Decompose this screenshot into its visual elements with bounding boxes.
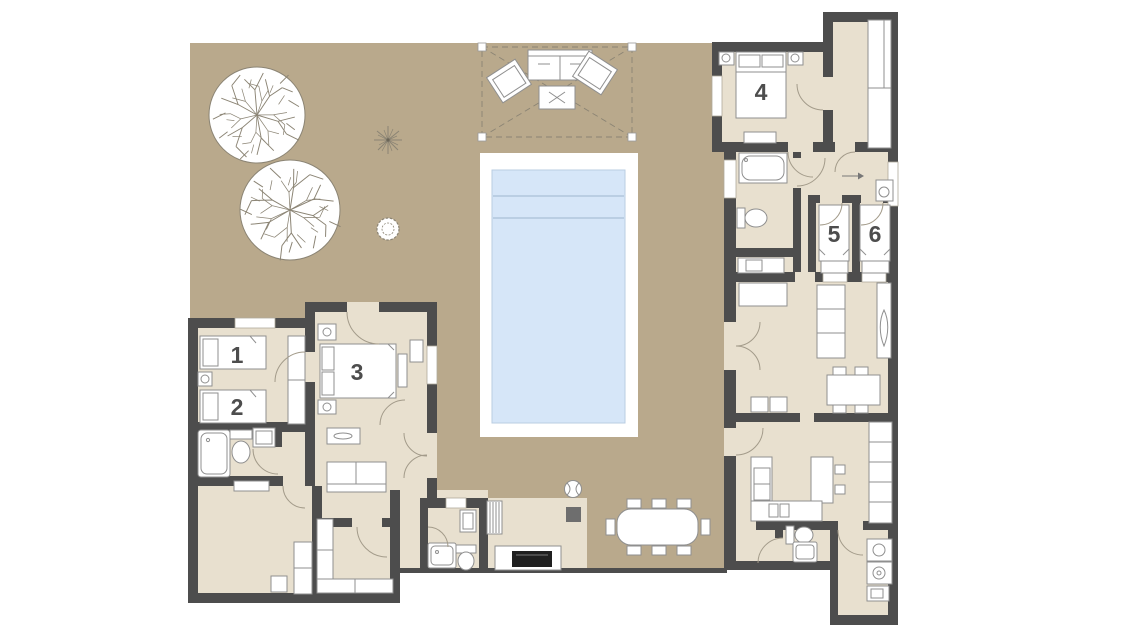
stove-icon (751, 457, 772, 503)
sofa-icon (817, 285, 845, 358)
stool-icon (751, 397, 768, 412)
room-label-5: 5 (828, 221, 841, 247)
room-label-6: 6 (869, 221, 882, 247)
shelf-icon (234, 481, 269, 491)
bathtub-icon (739, 153, 787, 183)
side-table-icon (271, 576, 287, 592)
shrub-icon (377, 218, 399, 240)
towel-rack-icon (487, 501, 502, 534)
washbasin-icon (876, 180, 893, 201)
shower-icon (198, 430, 230, 477)
kitchen-sink-icon (751, 501, 822, 521)
room-label-4: 4 (755, 79, 768, 105)
window (724, 160, 736, 198)
toilet-icon (230, 430, 252, 463)
wardrobe-icon (294, 542, 312, 594)
washbasin-icon (460, 510, 476, 532)
sphere-decor-icon (565, 481, 582, 498)
toilet-icon (737, 208, 767, 228)
wardrobe-icon (288, 336, 305, 424)
nightstand-lamp-icon (198, 372, 212, 386)
washbasin-icon (253, 428, 275, 447)
console-table-icon (327, 428, 360, 444)
tall-cabinet-icon (869, 422, 892, 523)
washer-icon (867, 539, 892, 561)
tree-icon (209, 67, 305, 163)
floor-plan-page: 1 2 3 4 5 6 (0, 0, 1122, 634)
console-plant-icon (877, 283, 891, 358)
washbasin-icon (738, 258, 784, 273)
room-label-3: 3 (351, 359, 364, 385)
side-table-icon (739, 283, 787, 306)
bench-icon (744, 132, 776, 143)
nightstand-lamp-icon (318, 400, 336, 414)
utility-sink-icon (867, 586, 889, 601)
room-label-1: 1 (231, 342, 244, 368)
window (427, 346, 437, 384)
dryer-icon (867, 562, 892, 584)
toilet-icon (786, 526, 813, 544)
room-label-2: 2 (231, 394, 244, 420)
bbq-grill-icon (512, 551, 552, 567)
toilet-icon (456, 545, 476, 570)
shower-icon (793, 542, 817, 562)
fire-table-icon (566, 507, 581, 522)
nightstand-lamp-icon (788, 52, 803, 65)
outdoor-coffee-table-icon (539, 86, 575, 109)
dresser-icon (410, 340, 423, 362)
window (446, 498, 466, 508)
villa-floor-plan: 1 2 3 4 5 6 (0, 0, 1122, 634)
window (235, 318, 275, 328)
hall-daybed-icon (327, 462, 386, 492)
window (712, 76, 722, 116)
stool-icon (770, 397, 787, 412)
nightstand-lamp-icon (719, 52, 734, 65)
nightstand-lamp-icon (318, 324, 336, 340)
pool-icon (492, 170, 625, 423)
pool (480, 153, 638, 437)
wardrobe-icon (868, 20, 891, 148)
shower-icon (428, 543, 456, 568)
bench-icon (398, 354, 407, 387)
